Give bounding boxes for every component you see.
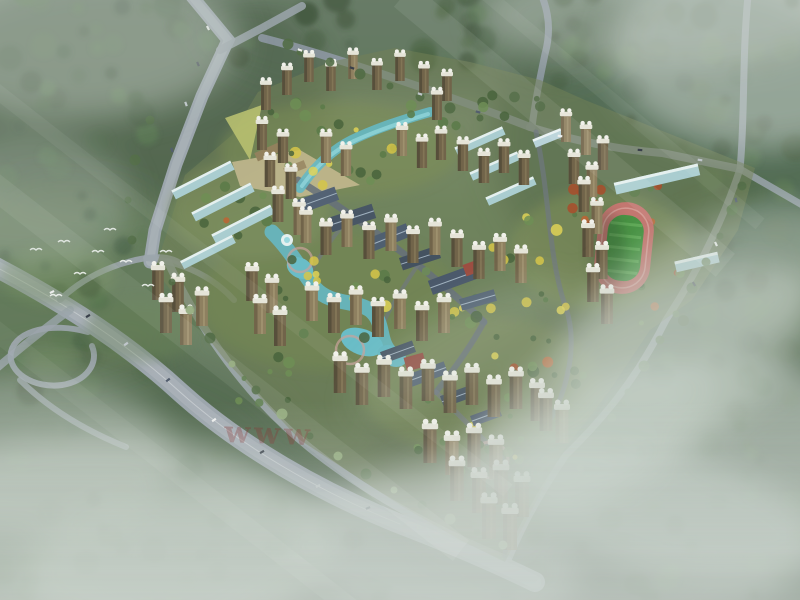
- aerial-rendering: www: [0, 0, 800, 600]
- fog-layer: [0, 0, 800, 600]
- rendering-canvas: www: [0, 0, 800, 600]
